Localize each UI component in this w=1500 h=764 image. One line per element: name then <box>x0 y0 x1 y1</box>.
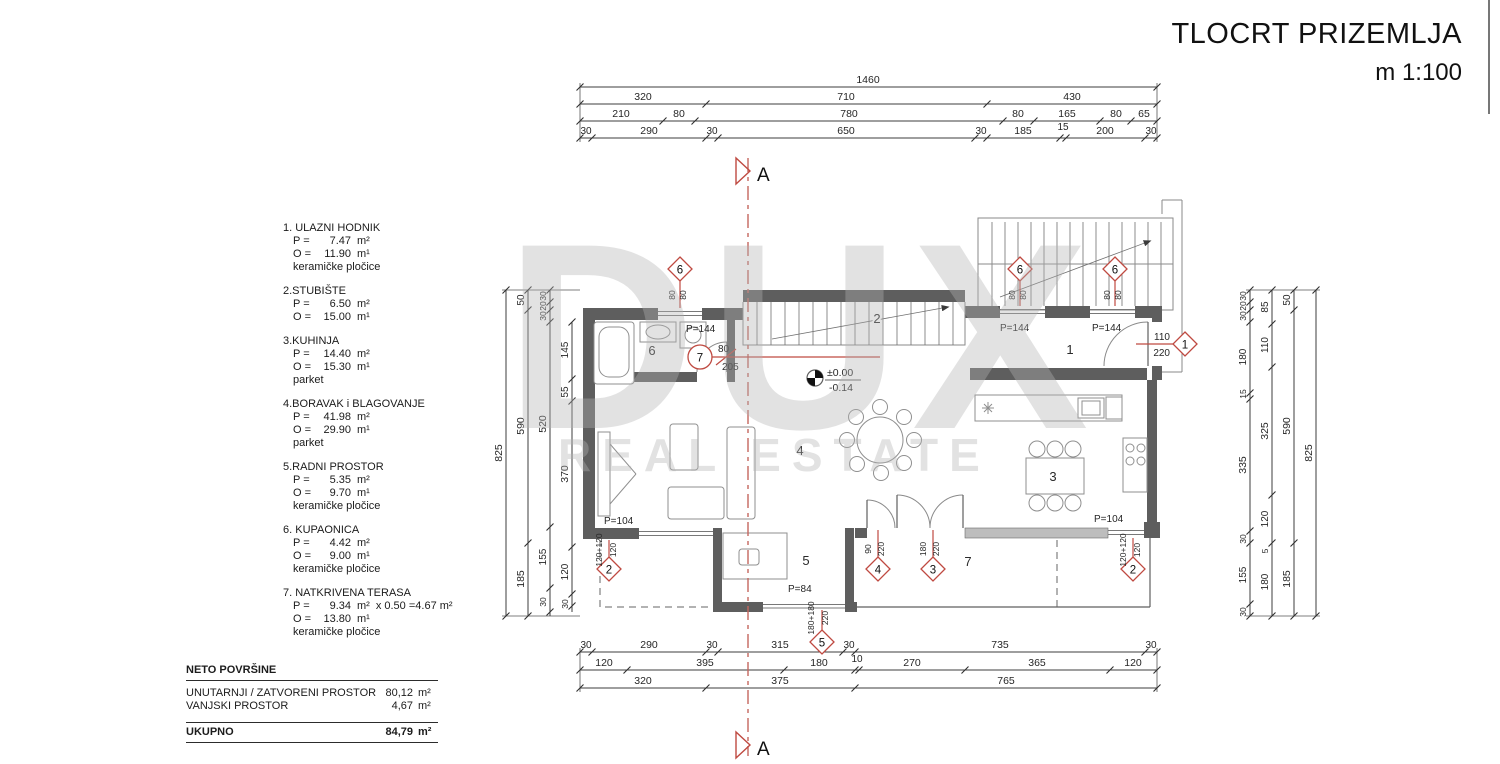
parapet-label: P=104 <box>1094 514 1124 525</box>
svg-text:120+120: 120+120 <box>594 533 604 567</box>
svg-text:15: 15 <box>1057 122 1069 133</box>
svg-text:110: 110 <box>1260 337 1271 353</box>
svg-text:290: 290 <box>640 639 658 651</box>
svg-text:4: 4 <box>875 565 882 577</box>
svg-text:80: 80 <box>1113 290 1123 300</box>
svg-text:110: 110 <box>1154 332 1170 343</box>
svg-text:30: 30 <box>560 599 570 609</box>
chair <box>1047 495 1063 511</box>
room-label-5: 5 <box>802 553 809 568</box>
svg-text:80: 80 <box>1007 290 1017 300</box>
svg-text:30: 30 <box>538 311 548 321</box>
parapet-label: P=144 <box>686 324 716 335</box>
room-label-6: 6 <box>648 343 655 358</box>
svg-text:2: 2 <box>606 565 612 577</box>
svg-text:80: 80 <box>1012 108 1024 120</box>
svg-text:30: 30 <box>538 291 548 301</box>
svg-text:650: 650 <box>837 125 855 137</box>
parapet-label: P=104 <box>604 516 634 527</box>
svg-text:200: 200 <box>1096 125 1114 137</box>
svg-text:590: 590 <box>515 417 527 435</box>
svg-text:120+120: 120+120 <box>1118 533 1128 567</box>
svg-text:765: 765 <box>997 675 1015 687</box>
chair <box>897 410 912 425</box>
svg-text:395: 395 <box>696 657 714 669</box>
svg-text:80: 80 <box>678 290 688 300</box>
room-label-7: 7 <box>964 554 971 569</box>
svg-text:155: 155 <box>538 548 549 565</box>
svg-text:375: 375 <box>771 675 789 687</box>
svg-text:120: 120 <box>1260 510 1271 527</box>
svg-text:80: 80 <box>1102 290 1112 300</box>
svg-text:±0.00: ±0.00 <box>827 367 853 379</box>
svg-text:825: 825 <box>1303 444 1315 462</box>
svg-text:30: 30 <box>580 126 592 137</box>
svg-text:315: 315 <box>771 639 789 651</box>
svg-text:220: 220 <box>931 542 941 556</box>
svg-text:430: 430 <box>1063 91 1081 103</box>
chair <box>874 466 889 481</box>
svg-text:85: 85 <box>1260 301 1271 313</box>
svg-text:365: 365 <box>1028 657 1046 669</box>
double-door-swing <box>930 495 963 528</box>
svg-text:825: 825 <box>493 444 505 462</box>
svg-text:20: 20 <box>538 301 548 311</box>
svg-text:120: 120 <box>1132 543 1142 557</box>
terrace-glazing-band <box>965 528 1108 538</box>
svg-text:80: 80 <box>1110 108 1122 120</box>
svg-text:6: 6 <box>1112 265 1118 277</box>
left-dimension-chain: 825 50 590 185 30 20 30 520 155 30 145 5… <box>493 287 580 620</box>
svg-text:120: 120 <box>560 563 571 580</box>
sofa <box>727 427 755 519</box>
chair <box>1065 495 1081 511</box>
parapet-label: P=84 <box>788 584 812 595</box>
svg-text:20: 20 <box>1238 301 1248 311</box>
tv-cabinet <box>598 432 610 516</box>
svg-text:335: 335 <box>1237 456 1249 474</box>
svg-text:2: 2 <box>1130 565 1136 577</box>
doors <box>697 322 1148 528</box>
svg-text:185: 185 <box>1014 125 1032 137</box>
svg-text:50: 50 <box>1282 294 1293 306</box>
svg-text:3: 3 <box>930 565 936 577</box>
svg-text:30: 30 <box>706 640 718 651</box>
floor-plan-page: TLOCRT PRIZEMLJA m 1:100 1. ULAZNI HODNI… <box>0 0 1500 764</box>
svg-text:7: 7 <box>697 353 703 365</box>
svg-text:180: 180 <box>1260 573 1271 590</box>
chair <box>1065 441 1081 457</box>
chair <box>907 433 922 448</box>
room-label-2: 2 <box>873 311 880 326</box>
svg-text:180: 180 <box>810 657 828 669</box>
svg-text:180: 180 <box>918 542 928 556</box>
svg-text:290: 290 <box>640 125 658 137</box>
svg-text:6: 6 <box>677 265 683 277</box>
parapet-label: P=144 <box>1000 323 1030 334</box>
svg-text:30: 30 <box>1145 640 1157 651</box>
chair <box>850 457 865 472</box>
svg-text:320: 320 <box>634 675 652 687</box>
svg-text:5: 5 <box>819 638 825 650</box>
terrace-column <box>1144 522 1160 538</box>
chair <box>1029 495 1045 511</box>
stair-direction-arrow <box>772 307 948 339</box>
svg-text:5: 5 <box>1260 548 1270 553</box>
interior-staircase <box>743 302 965 345</box>
floor-plan-svg: 1460 320 710 430 210 80 780 80 165 80 65… <box>0 0 1500 764</box>
section-label-top: A <box>757 165 770 186</box>
svg-text:220: 220 <box>820 611 830 625</box>
svg-text:30: 30 <box>975 126 987 137</box>
svg-text:90: 90 <box>863 544 873 554</box>
svg-text:80: 80 <box>667 290 677 300</box>
svg-text:590: 590 <box>1281 417 1293 435</box>
room-label-4: 4 <box>796 443 803 458</box>
svg-text:120: 120 <box>595 657 613 669</box>
svg-text:520: 520 <box>537 415 549 433</box>
svg-text:180: 180 <box>1238 348 1249 365</box>
chair <box>1047 441 1063 457</box>
terrace-door-swing <box>867 500 895 528</box>
svg-text:10: 10 <box>851 654 863 665</box>
chair <box>873 400 888 415</box>
svg-text:270: 270 <box>903 657 921 669</box>
svg-text:120: 120 <box>608 543 618 557</box>
work-area-furniture <box>723 533 787 579</box>
dining-table <box>857 417 903 463</box>
svg-text:780: 780 <box>840 108 858 120</box>
svg-text:185: 185 <box>1281 570 1293 588</box>
svg-text:710: 710 <box>837 91 855 103</box>
svg-text:220: 220 <box>876 542 886 556</box>
svg-text:30: 30 <box>706 126 718 137</box>
svg-text:30: 30 <box>1238 534 1248 544</box>
svg-text:30: 30 <box>1238 311 1248 321</box>
room-label-1: 1 <box>1066 342 1073 357</box>
chair <box>897 456 912 471</box>
svg-text:155: 155 <box>1238 566 1249 583</box>
chair <box>739 549 759 565</box>
parapet-label: P=144 <box>1092 323 1122 334</box>
svg-text:325: 325 <box>1259 422 1271 440</box>
svg-text:1460: 1460 <box>856 74 880 86</box>
svg-text:30: 30 <box>1238 291 1248 301</box>
section-label-bottom: A <box>757 739 770 760</box>
svg-text:320: 320 <box>634 91 652 103</box>
chair <box>1029 441 1045 457</box>
svg-text:735: 735 <box>991 639 1009 651</box>
svg-text:180+180: 180+180 <box>806 601 816 635</box>
svg-text:205: 205 <box>722 362 739 373</box>
svg-text:1: 1 <box>1182 340 1188 352</box>
double-door-swing <box>897 495 930 528</box>
svg-text:370: 370 <box>559 465 571 483</box>
svg-text:120: 120 <box>1124 657 1142 669</box>
svg-text:55: 55 <box>560 386 571 398</box>
svg-text:30: 30 <box>538 597 548 607</box>
svg-text:30: 30 <box>1238 607 1248 617</box>
svg-text:30: 30 <box>580 640 592 651</box>
svg-text:6: 6 <box>1017 265 1023 277</box>
svg-text:210: 210 <box>612 108 630 120</box>
svg-text:15: 15 <box>1238 389 1248 399</box>
svg-text:80: 80 <box>718 344 730 355</box>
svg-text:220: 220 <box>1153 348 1170 359</box>
bathtub <box>594 322 634 384</box>
kitchen-fixtures <box>975 395 1147 511</box>
level-marker: ±0.00 -0.14 <box>807 367 861 394</box>
svg-text:50: 50 <box>516 294 527 306</box>
svg-text:185: 185 <box>515 570 527 588</box>
armchair <box>670 424 698 470</box>
chair <box>849 410 864 425</box>
svg-text:65: 65 <box>1138 108 1150 120</box>
svg-text:30: 30 <box>1145 126 1157 137</box>
sofa <box>668 487 724 519</box>
bottom-dimension-chain: 30 290 30 315 30 735 30 120 395 180 10 2… <box>577 639 1161 692</box>
svg-text:145: 145 <box>560 341 571 358</box>
svg-text:-0.14: -0.14 <box>829 382 853 394</box>
room-label-3: 3 <box>1049 469 1056 484</box>
svg-text:30: 30 <box>843 640 855 651</box>
top-dimension-chain: 1460 320 710 430 210 80 780 80 165 80 65… <box>577 74 1161 142</box>
svg-text:80: 80 <box>1018 290 1028 300</box>
right-dimension-chain: 30 20 30 180 15 335 30 155 30 85 110 325… <box>1237 287 1320 620</box>
chair <box>840 433 855 448</box>
svg-text:80: 80 <box>673 108 685 120</box>
svg-text:165: 165 <box>1058 108 1076 120</box>
